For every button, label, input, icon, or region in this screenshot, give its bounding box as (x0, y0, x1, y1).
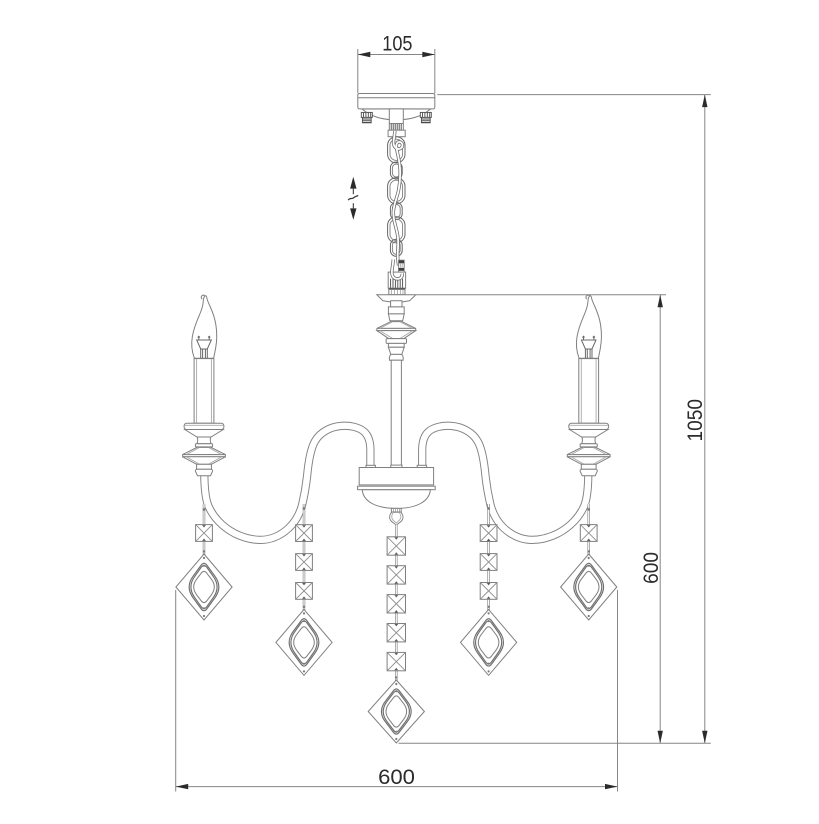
svg-text:105: 105 (382, 32, 412, 56)
svg-text:600: 600 (639, 552, 663, 584)
svg-text:1050: 1050 (683, 399, 707, 442)
svg-text:600: 600 (378, 765, 415, 789)
